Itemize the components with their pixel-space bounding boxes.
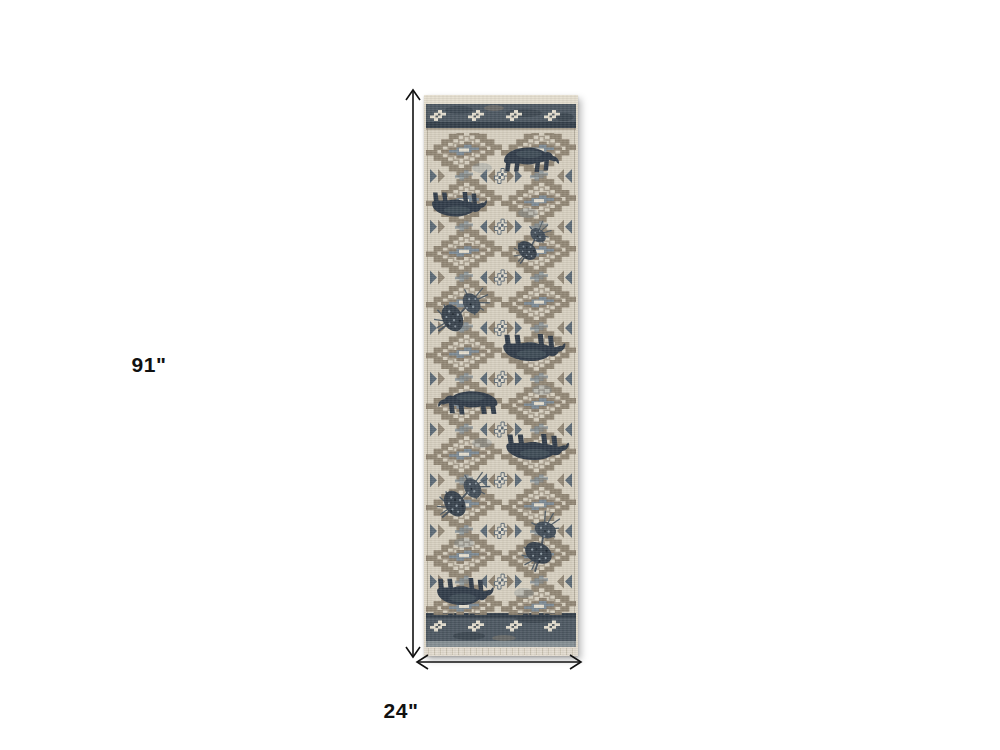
- width-dimension-arrow: [412, 652, 586, 672]
- height-dimension-label: 91": [124, 353, 174, 377]
- rug-image: [424, 95, 578, 656]
- width-dimension-label: 24": [376, 699, 426, 723]
- height-dimension-arrow: [403, 85, 423, 663]
- rug-pattern-art: [424, 95, 578, 656]
- product-dimension-diagram: 91" 24": [0, 0, 1000, 750]
